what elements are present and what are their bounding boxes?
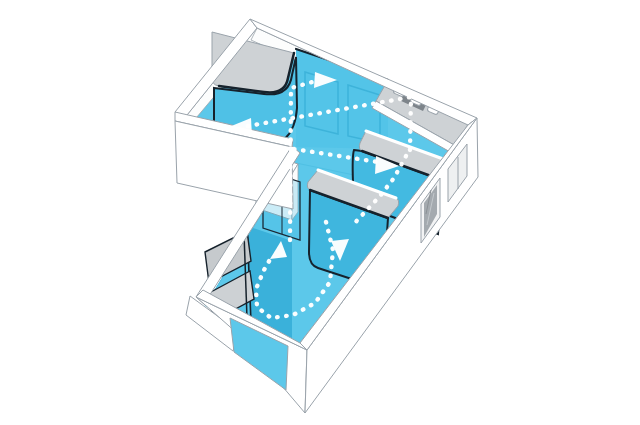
diagram-canvas: Cutaway axonometric view of an L-shaped …	[0, 0, 640, 425]
axonometric-apartment-diagram	[0, 0, 640, 425]
